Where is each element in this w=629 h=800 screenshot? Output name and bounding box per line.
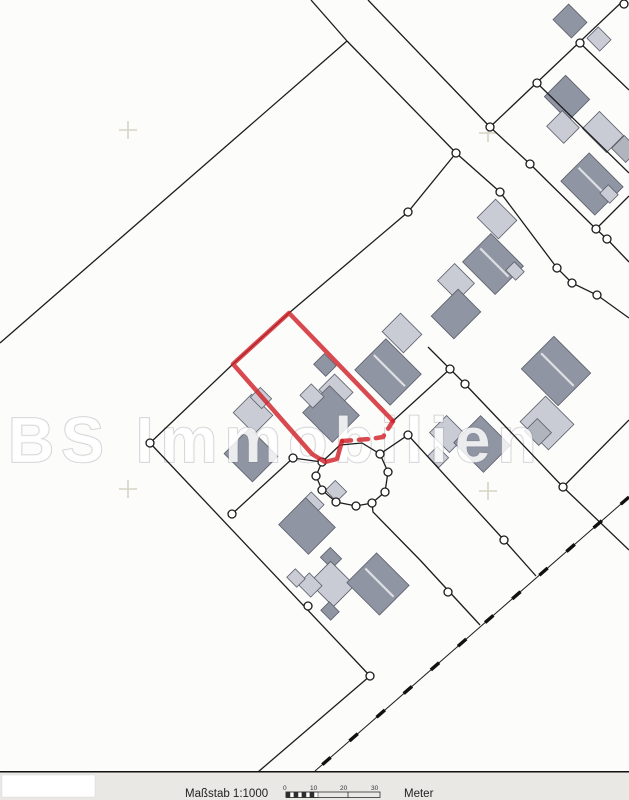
boundary-point [444,588,452,596]
building-footprint [553,4,587,38]
scale-tick-label: 0 [283,785,287,792]
parcel-boundary-lines [0,0,629,772]
boundary-point [381,488,389,496]
building-footprint [587,27,611,51]
boundary-point [404,208,412,216]
building-footprint [279,498,336,555]
building-footprints [224,4,629,620]
parcel-boundary-line [580,43,629,90]
scale-tick-label: 30 [371,785,379,792]
building-footprint [521,336,590,405]
boundary-point [496,188,504,196]
boundary-point [592,225,600,233]
scale-bar-cell [298,792,302,798]
boundary-point [376,450,384,458]
boundary-point [446,365,454,373]
boundary-point [526,160,534,168]
boundary-point [559,483,567,491]
boundary-point [366,672,374,680]
scale-bar-cell [306,792,310,798]
scale-bar-cell [294,792,298,798]
scale-bar-cell [314,792,318,798]
boundary-point [500,536,508,544]
boundary-point [289,454,297,462]
boundary-point [568,279,576,287]
boundary-point [486,123,494,131]
scale-bar-cell [310,792,314,798]
boundary-point [318,486,326,494]
surveyed-path-line [315,497,629,771]
boundary-point [553,264,561,272]
boundary-point [146,439,154,447]
building-footprint [431,289,480,338]
boundary-point [603,235,611,243]
scale-bar-cell [302,792,306,798]
boundary-point [461,380,469,388]
boundary-point [593,291,601,299]
boundary-point [352,502,360,510]
boundary-point [332,498,340,506]
scale-tick-label: 10 [310,785,318,792]
boundary-point [368,499,376,507]
boundary-point [404,431,412,439]
parcel-boundary-line [150,153,456,443]
parcel-boundary-line [0,41,347,343]
building-footprint [547,111,580,144]
map-footer-strip: Maßstab 1:1000 0 10 20 30 Meter [0,771,629,800]
parcel-boundary-line [258,676,370,772]
parcel-boundary-line [311,0,347,41]
footer-blank-box [2,775,95,797]
building-footprint [544,75,589,120]
cadastral-map-page: BS Immobilien Maßstab 1:1000 0 10 20 30 … [0,0,629,800]
boundary-point [304,602,312,610]
boundary-point [576,39,584,47]
boundary-point [533,79,541,87]
building-footprint [347,553,409,615]
boundary-point [312,472,320,480]
boundary-point [452,149,460,157]
boundary-point [620,0,628,8]
meter-label: Meter [404,788,434,800]
boundary-point [384,468,392,476]
scale-label: Maßstab 1:1000 [185,788,268,800]
building-footprint [355,339,421,405]
building-footprint [561,153,623,215]
scale-tick-label: 20 [340,785,348,792]
scale-bar-cell [290,792,294,798]
cadastral-map: BS Immobilien Maßstab 1:1000 0 10 20 30 … [0,0,629,800]
parcel-boundary-line [563,420,629,487]
map-border-line [0,771,629,773]
scale-bar [286,792,318,798]
building-footprint [477,199,517,239]
boundary-point [228,510,236,518]
building-footprint [321,602,339,620]
scale-bar-cell [286,792,290,798]
